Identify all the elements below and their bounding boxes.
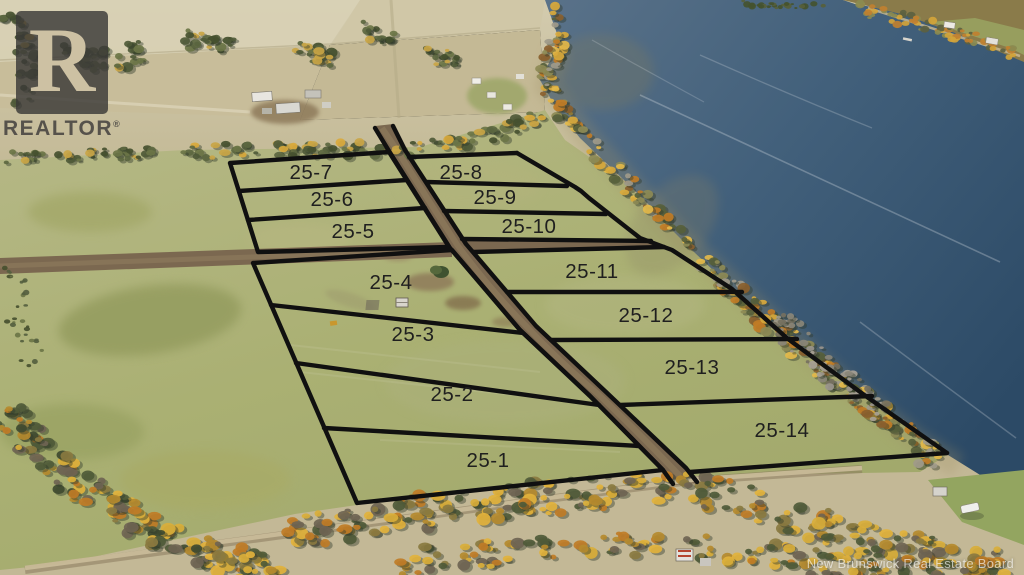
registered-trademark-symbol: ® [113, 119, 120, 129]
lot-label-25-12: 25-12 [619, 304, 674, 327]
realtor-wordmark-text: REALTOR [3, 117, 113, 140]
realtor-wordmark: REALTOR® [3, 117, 166, 141]
lot-label-25-3: 25-3 [391, 323, 434, 346]
lot-label-25-8: 25-8 [439, 161, 482, 184]
lot-label-25-4: 25-4 [369, 271, 412, 294]
board-watermark: New Brunswick Real Estate Board [807, 556, 1014, 571]
lot-label-25-5: 25-5 [331, 220, 374, 243]
realtor-r-letter: R [29, 14, 95, 106]
aerial-listing-photo: 25-7 25-6 25-5 25-8 25-9 25-10 25-4 25-3… [0, 0, 1024, 575]
lot-label-25-6: 25-6 [310, 188, 353, 211]
lot-label-25-1: 25-1 [466, 449, 509, 472]
realtor-logo: R REALTOR® [16, 11, 166, 141]
lot-divider-25-12-25-13 [551, 339, 797, 340]
lot-label-25-9: 25-9 [473, 186, 516, 209]
lot-label-25-11: 25-11 [565, 260, 618, 283]
lot-label-25-14: 25-14 [755, 419, 810, 442]
lot-block-8-9-10-bottom [462, 239, 651, 241]
lot-divider-25-9-25-10 [444, 211, 606, 214]
lot-label-25-13: 25-13 [665, 356, 720, 379]
lot-label-25-2: 25-2 [430, 383, 473, 406]
realtor-r-icon: R [16, 11, 108, 114]
lot-label-25-7: 25-7 [289, 161, 332, 184]
lot-label-25-10: 25-10 [502, 215, 557, 238]
